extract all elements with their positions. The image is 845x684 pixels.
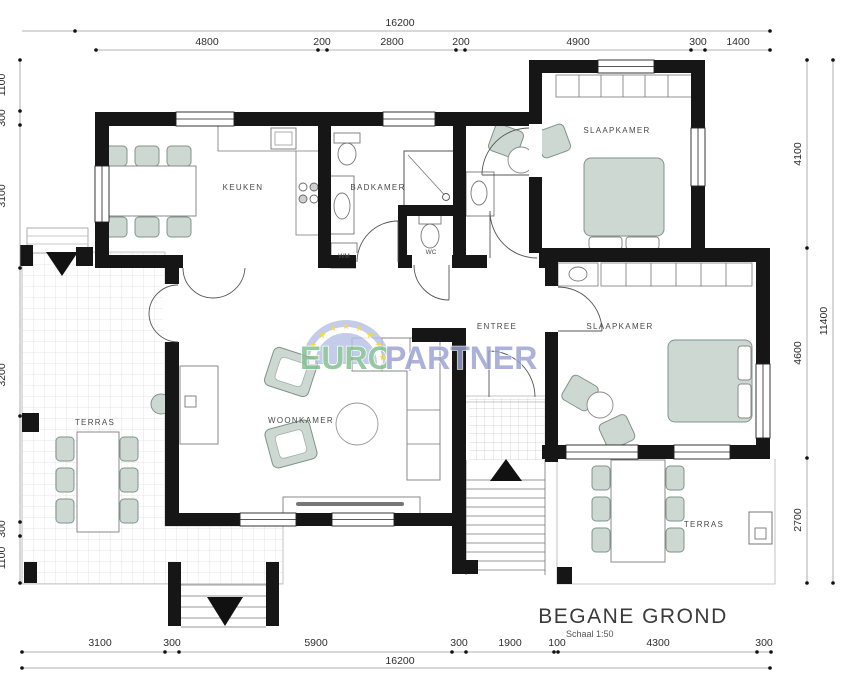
dim-top: 200 <box>313 36 331 48</box>
shower-drain-icon <box>443 194 450 201</box>
toilet-icon <box>338 143 356 165</box>
dimension-bottom: 3100 300 5900 300 1900 100 4300 300 1620… <box>20 637 773 670</box>
terrace-planter-inner <box>755 528 766 539</box>
toilet-tank <box>334 133 360 143</box>
room-label-wm: WM <box>338 253 350 260</box>
side-table <box>587 392 613 418</box>
dim-left: 1100 <box>0 547 8 570</box>
dim-right: 4100 <box>792 142 804 166</box>
dim-top: 300 <box>689 36 707 48</box>
terrace-table <box>611 460 665 562</box>
window <box>176 112 234 126</box>
dim-bottom: 300 <box>450 637 468 649</box>
window <box>566 445 638 459</box>
stove-burner <box>310 195 318 203</box>
room-label-keuken: KEUKEN <box>223 183 264 192</box>
svg-text:★: ★ <box>329 324 337 334</box>
svg-text:★: ★ <box>355 324 363 334</box>
dim-left: 300 <box>0 109 8 127</box>
stove-burner <box>299 183 307 191</box>
pillow <box>589 237 622 249</box>
dimension-top: 16200 4800 200 2800 200 4900 300 1400 <box>22 17 772 52</box>
dim-top: 4900 <box>566 36 590 48</box>
terrace-post <box>24 562 37 583</box>
bedroom-top-furniture <box>487 75 692 249</box>
coffee-table <box>336 403 378 445</box>
bedroom-bottom-furniture <box>558 263 752 451</box>
dim-right-total: 11400 <box>818 307 830 336</box>
dim-left: 3200 <box>0 363 8 387</box>
steps-down-arrow-icon <box>207 597 243 626</box>
kitchen-furniture <box>100 126 318 237</box>
closet <box>601 263 752 286</box>
dim-left: 3100 <box>0 184 8 208</box>
dining-chair <box>167 217 191 237</box>
dim-top: 200 <box>452 36 470 48</box>
terrace-post <box>20 245 33 266</box>
wc-toilet-icon <box>421 224 439 248</box>
dim-top: 4800 <box>195 36 219 48</box>
room-label-slaapkamer-top: SLAAPKAMER <box>583 126 650 135</box>
room-label-wc: WC <box>426 249 437 256</box>
terrace-chair <box>56 468 74 492</box>
room-label-terras-right: TERRAS <box>684 520 724 529</box>
dim-right: 2700 <box>792 508 804 532</box>
dining-chair <box>135 217 159 237</box>
vestibule-floor <box>469 398 545 460</box>
pillow <box>626 237 659 249</box>
terrace-chair <box>666 466 684 490</box>
dim-bottom-total: 16200 <box>385 655 414 667</box>
terrace-chair <box>666 497 684 521</box>
double-door-kitchen <box>183 268 245 298</box>
stairs-up-arrow-icon <box>490 459 522 481</box>
floorplan-page: 16200 4800 200 2800 200 4900 300 1400 31… <box>0 0 845 684</box>
bed <box>584 158 664 236</box>
dim-bottom: 300 <box>163 637 181 649</box>
terrace-chair <box>56 499 74 523</box>
dim-bottom: 300 <box>755 637 773 649</box>
dim-top-total: 16200 <box>385 17 414 29</box>
dim-left: 1100 <box>0 74 8 97</box>
terrace-post <box>76 247 93 266</box>
room-label-badkamer: BADKAMER <box>350 183 405 192</box>
pillow <box>738 346 751 380</box>
desk-monitor <box>185 396 196 407</box>
terrace-chair <box>56 437 74 461</box>
svg-text:★: ★ <box>342 322 350 332</box>
terrace-chair <box>120 437 138 461</box>
terrace-post <box>557 567 572 584</box>
watermark-text-euro: EURO <box>300 340 392 376</box>
wc-toilet-tank <box>419 215 441 224</box>
pillow <box>738 384 751 418</box>
dimension-right: 4100 4600 2700 11400 <box>792 58 835 585</box>
terrace-right <box>557 459 775 584</box>
scale-note: Schaal 1:50 <box>566 629 614 639</box>
dimension-left: 1100 300 3100 3200 300 1100 <box>0 58 22 585</box>
terrace-table <box>77 432 119 532</box>
terrace-chair <box>120 499 138 523</box>
bathroom-furniture <box>330 133 494 268</box>
sink-icon <box>334 193 350 219</box>
dim-top: 1400 <box>726 36 750 48</box>
window <box>598 60 654 73</box>
title-block: BEGANE GROND Schaal 1:50 <box>538 605 728 639</box>
window <box>95 166 109 222</box>
terrace-chair <box>592 528 610 552</box>
dim-right: 4600 <box>792 341 804 365</box>
room-label-woonkamer: WOONKAMER <box>268 416 334 425</box>
dim-bottom: 4300 <box>646 637 670 649</box>
entrance-stairs <box>466 396 545 575</box>
watermark-text-partner: PARTNER <box>385 340 537 376</box>
window <box>240 513 296 526</box>
room-label-entree: ENTREE <box>477 322 517 331</box>
terrace-post <box>22 413 39 432</box>
dim-bottom: 3100 <box>88 637 112 649</box>
stove-burner <box>299 195 307 203</box>
terrace-chair <box>120 468 138 492</box>
dim-left: 300 <box>0 520 8 538</box>
dim-bottom: 5900 <box>304 637 328 649</box>
room-label-slaapkamer-bottom: SLAAPKAMER <box>586 322 653 331</box>
window <box>332 513 394 526</box>
terrace-chair <box>592 497 610 521</box>
tv-icon <box>296 502 404 506</box>
dim-bottom: 1900 <box>498 637 522 649</box>
sink-icon <box>569 267 587 281</box>
closet <box>556 75 692 97</box>
dining-chair <box>135 146 159 166</box>
dim-top: 2800 <box>380 36 404 48</box>
window <box>756 364 770 438</box>
terrace-left-floor <box>22 252 283 584</box>
door-wc <box>414 265 449 300</box>
window <box>691 128 705 186</box>
kitchen-counter <box>218 126 318 235</box>
sink-icon <box>471 181 487 205</box>
terrace-chair <box>666 528 684 552</box>
terrace-chair <box>592 466 610 490</box>
window <box>674 445 730 459</box>
dining-chair <box>167 146 191 166</box>
dim-bottom: 100 <box>548 637 566 649</box>
window <box>383 112 435 126</box>
stove-burner <box>310 183 318 191</box>
page-title: BEGANE GROND <box>538 605 728 628</box>
room-label-terras-left: TERRAS <box>75 418 115 427</box>
dining-table <box>100 166 196 216</box>
floorplan-drawing: 16200 4800 200 2800 200 4900 300 1400 31… <box>0 0 845 684</box>
